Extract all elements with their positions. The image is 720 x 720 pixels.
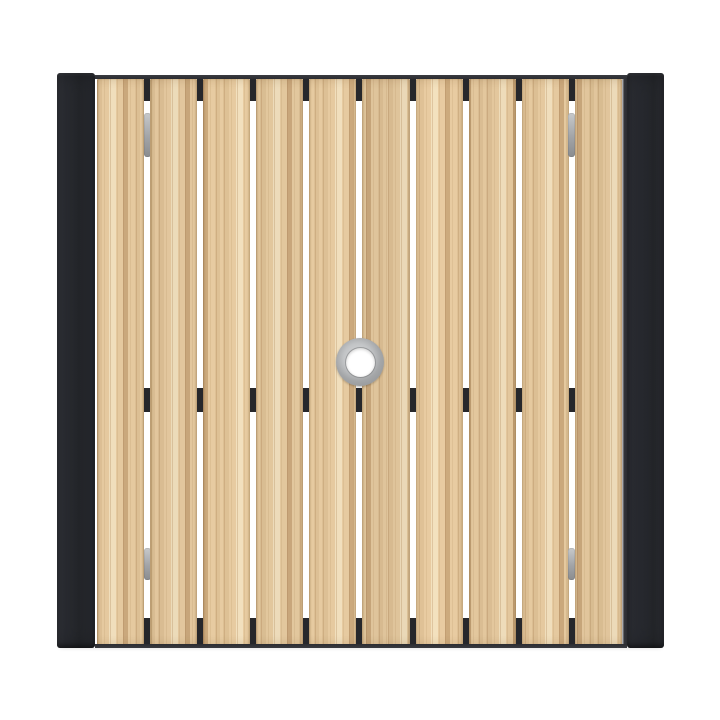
slat-deck <box>95 75 627 648</box>
crossbar-through-gap <box>463 388 469 412</box>
wood-slat <box>522 79 569 645</box>
gap-notch-top <box>569 79 575 101</box>
gap-notch-bottom <box>516 618 522 645</box>
slat-gap <box>410 79 416 645</box>
frame-rail-left <box>57 73 95 648</box>
product-photo <box>0 0 720 720</box>
gap-notch-top <box>516 79 522 101</box>
gap-notch-bottom <box>463 618 469 645</box>
crossbar-through-gap <box>410 388 416 412</box>
gap-notch-top <box>410 79 416 101</box>
table-top <box>57 73 664 648</box>
slat-gap <box>569 79 575 645</box>
gap-notch-bottom <box>569 618 575 645</box>
wood-slat <box>469 79 516 645</box>
slat-gap <box>516 79 522 645</box>
wood-slat <box>97 79 144 645</box>
wood-slat <box>256 79 303 645</box>
slat-gap <box>463 79 469 645</box>
wood-slat <box>416 79 463 645</box>
frame-edge-bottom <box>95 644 627 648</box>
crossbar-through-gap <box>516 388 522 412</box>
wood-slat <box>150 79 197 645</box>
crossbar-through-gap <box>569 388 575 412</box>
frame-rail-right <box>627 73 664 648</box>
gap-notch-top <box>463 79 469 101</box>
umbrella-hole-opening <box>346 348 375 377</box>
gap-notch-bottom <box>410 618 416 645</box>
umbrella-hole-ring <box>336 338 384 386</box>
wood-slat <box>575 79 622 645</box>
wood-slat <box>203 79 250 645</box>
